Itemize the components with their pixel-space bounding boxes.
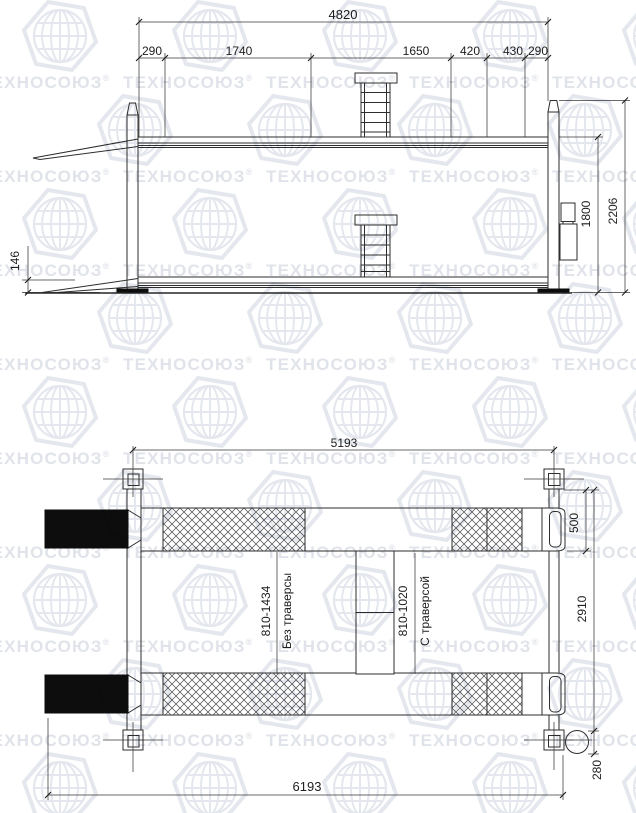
dim-segment-1740: 1740 — [226, 44, 253, 58]
dim-plan-overall-length: 6193 — [293, 779, 322, 794]
ramp-hinge-plate-bottom — [128, 675, 141, 713]
label-no-traverse-range: 810-1434 — [259, 585, 273, 636]
jack-lower — [355, 215, 397, 277]
tread-plate-top-left — [163, 508, 305, 551]
dim-segment-290-left: 290 — [142, 44, 162, 58]
right-column — [538, 101, 577, 294]
traverse-plate — [356, 551, 394, 674]
pump-unit-circle — [566, 731, 589, 754]
drawing-page: 4820 290 1740 1650 420 430 290 1800 2206… — [0, 0, 636, 813]
tread-plate-top-right — [487, 508, 522, 551]
dim-segment-420: 420 — [460, 44, 480, 58]
dim-post-span: 5193 — [331, 436, 358, 450]
ramp-hinge-plate-top — [128, 510, 141, 548]
runway-lowered — [138, 277, 548, 288]
dim-lift-height: 1800 — [579, 200, 593, 227]
runway-raised — [138, 137, 548, 148]
runway-plan-bottom — [128, 673, 565, 715]
tread-plate-bottom-left — [163, 673, 305, 715]
dim-runway-width: 500 — [567, 513, 581, 533]
label-traverse: С траверсой — [418, 576, 432, 646]
plan-view: 5193 6193 500 2910 280 810-1434 Без трав… — [45, 436, 604, 800]
label-no-traverse: Без траверсы — [280, 573, 294, 649]
dim-motor-diameter: 280 — [590, 760, 604, 780]
dim-overall-width: 2910 — [575, 595, 589, 622]
jack-upper — [355, 73, 397, 137]
post-centerlines — [103, 446, 592, 772]
side-dimension-ticks — [25, 19, 628, 296]
approach-ramp-bottom — [45, 675, 128, 713]
label-traverse-range: 810-1020 — [396, 585, 410, 636]
approach-ramp-top — [45, 510, 128, 548]
dim-segment-290-right: 290 — [528, 44, 548, 58]
dim-segment-1650: 1650 — [403, 44, 430, 58]
left-column — [117, 103, 148, 293]
tread-plate-bottom-right — [487, 673, 522, 715]
dim-overall-length: 4820 — [329, 7, 358, 22]
tread-plate-bottom-mid — [452, 673, 487, 715]
runway-plan-top — [128, 508, 565, 551]
side-view: 4820 290 1740 1650 420 430 290 1800 2206… — [8, 7, 630, 296]
tread-plate-top-mid — [452, 508, 487, 551]
dim-lowered-height: 146 — [8, 251, 22, 271]
dim-column-height: 2206 — [606, 197, 620, 224]
dim-segment-430: 430 — [503, 44, 523, 58]
technical-drawing: 4820 290 1740 1650 420 430 290 1800 2206… — [0, 0, 636, 813]
power-unit — [560, 203, 577, 260]
ramp-raised — [33, 139, 138, 160]
side-dimension-lines — [22, 17, 630, 293]
